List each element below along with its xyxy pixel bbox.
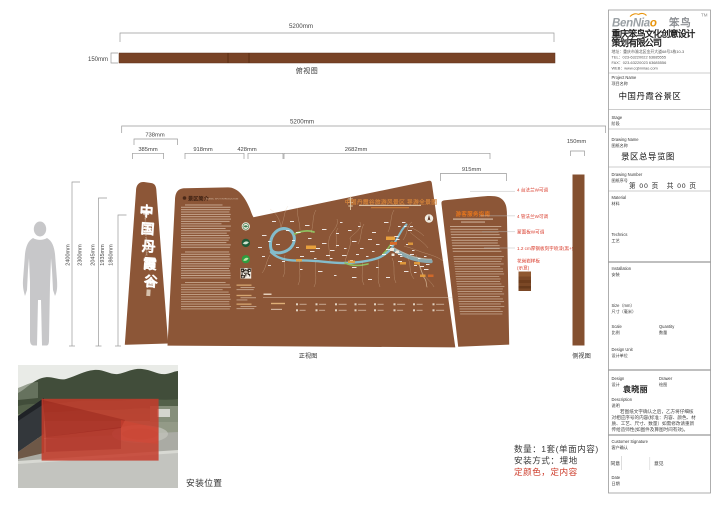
svg-text:第 00 页 共 00 页: 第 00 页 共 00 页 <box>629 181 697 190</box>
svg-text:4 管法兰W可调: 4 管法兰W可调 <box>517 213 549 220</box>
svg-text:2682mm: 2682mm <box>345 147 368 153</box>
svg-text:2300mm: 2300mm <box>78 244 84 266</box>
svg-text:日期: 日期 <box>612 480 620 486</box>
svg-text:数量: 数量 <box>659 329 667 335</box>
svg-text:中国丹霞谷旅游风景区 导游全景图: 中国丹霞谷旅游风景区 导游全景图 <box>345 198 438 206</box>
svg-text:质、工艺、尺寸、数量）如需修改请重新: 质、工艺、尺寸、数量）如需修改请重新 <box>612 420 695 427</box>
svg-text:Stage: Stage <box>612 115 623 120</box>
svg-text:客户确认: 客户确认 <box>612 444 628 450</box>
svg-text:比例: 比例 <box>612 329 620 335</box>
svg-text:Design: Design <box>612 376 625 381</box>
svg-text:2400mm: 2400mm <box>66 244 72 266</box>
svg-text:Customer Signature: Customer Signature <box>612 439 649 444</box>
svg-text:工艺: 工艺 <box>612 238 620 243</box>
svg-text:中国丹霞谷景区: 中国丹霞谷景区 <box>619 91 682 101</box>
svg-text:正视图: 正视图 <box>299 352 318 360</box>
svg-text:谷: 谷 <box>144 274 159 290</box>
svg-text:设计: 设计 <box>612 381 620 387</box>
svg-text:Description: Description <box>612 397 633 402</box>
svg-text:918mm: 918mm <box>193 147 213 153</box>
svg-text:Drawer: Drawer <box>659 376 673 381</box>
svg-text:Material: Material <box>612 195 627 200</box>
svg-text:Drawing Name: Drawing Name <box>612 137 640 142</box>
svg-text:5200mm: 5200mm <box>290 119 314 126</box>
svg-text:对相应序号的内容(标准：内容、颜色、材: 对相应序号的内容(标准：内容、颜色、材 <box>612 414 697 421</box>
svg-text:俯视图: 俯视图 <box>296 66 319 75</box>
svg-text:150mm: 150mm <box>88 57 108 63</box>
svg-text:WEB：www.cqbnniao.com: WEB：www.cqbnniao.com <box>612 66 658 71</box>
svg-text:游客服务指南: 游客服务指南 <box>456 210 491 218</box>
svg-text:安装方式：埋地: 安装方式：埋地 <box>514 455 578 466</box>
svg-text:绘图: 绘图 <box>659 381 667 387</box>
svg-text:图纸序号: 图纸序号 <box>612 177 628 183</box>
svg-text:Date: Date <box>612 475 621 480</box>
svg-text:传给造师性(如图件及算图时间有效)。: 传给造师性(如图件及算图时间有效)。 <box>612 426 689 433</box>
svg-text:Installation: Installation <box>612 266 632 271</box>
svg-text:Scale: Scale <box>612 324 623 329</box>
svg-text:侧视图: 侧视图 <box>572 352 591 360</box>
svg-text:说明: 说明 <box>612 402 620 408</box>
svg-text:1935mm: 1935mm <box>100 244 106 266</box>
svg-text:2045mm: 2045mm <box>91 244 97 266</box>
svg-text:738mm: 738mm <box>145 133 165 139</box>
svg-text:安装位置: 安装位置 <box>186 477 222 488</box>
svg-text:Technics: Technics <box>612 232 628 237</box>
svg-text:笨鸟: 笨鸟 <box>669 16 692 29</box>
svg-text:阶段: 阶段 <box>612 120 620 126</box>
svg-text:尺寸（毫米）: 尺寸（毫米） <box>612 308 637 314</box>
svg-text:150mm: 150mm <box>567 139 587 145</box>
svg-text:Drawing Number: Drawing Number <box>612 172 643 177</box>
svg-text:BenNiao: BenNiao <box>612 18 657 30</box>
svg-text:地址：重庆市渝北区金开大道68号3栋10-3: 地址：重庆市渝北区金开大道68号3栋10-3 <box>612 49 685 54</box>
svg-text:5200mm: 5200mm <box>289 23 313 30</box>
svg-text:Size（mm）: Size（mm） <box>612 303 635 308</box>
svg-text:915mm: 915mm <box>462 167 482 173</box>
svg-text:(示意): (示意) <box>517 265 530 271</box>
svg-text:花岗岩样板: 花岗岩样板 <box>517 258 540 265</box>
svg-text:FAX：023-63220023 63685556: FAX：023-63220023 63685556 <box>612 60 667 65</box>
svg-text:霞: 霞 <box>143 257 158 273</box>
svg-text:Design Unit: Design Unit <box>612 347 634 352</box>
svg-text:Quantity: Quantity <box>659 324 675 329</box>
svg-text:385mm: 385mm <box>138 147 158 153</box>
svg-text:428mm: 428mm <box>237 147 257 153</box>
svg-text:材料: 材料 <box>612 200 620 206</box>
svg-text:TEL：023-63220022 63685555: TEL：023-63220022 63685555 <box>612 55 667 60</box>
svg-text:袁晓丽: 袁晓丽 <box>622 384 648 394</box>
svg-text:设计单位: 设计单位 <box>612 352 628 358</box>
svg-text:图纸名称: 图纸名称 <box>612 142 628 148</box>
svg-text:同意: 同意 <box>611 460 621 467</box>
svg-text:1860mm: 1860mm <box>109 244 115 266</box>
svg-text:策划有限公司: 策划有限公司 <box>611 37 662 48</box>
svg-text:若图纸文字确认之后，乙方将仔细核: 若图纸文字确认之后，乙方将仔细核 <box>620 408 694 415</box>
svg-text:4 台法兰W可调: 4 台法兰W可调 <box>517 187 549 194</box>
svg-text:定颜色，定内容: 定颜色，定内容 <box>514 466 578 477</box>
svg-text:安装: 安装 <box>612 271 620 277</box>
svg-text:Project Name: Project Name <box>612 75 638 80</box>
svg-text:景区总导览图: 景区总导览图 <box>621 152 675 162</box>
svg-text:蒙面板W可调: 蒙面板W可调 <box>517 229 545 236</box>
svg-text:数量：1套(单面内容): 数量：1套(单面内容) <box>514 443 599 454</box>
svg-text:1.2 cm厚钢板刻字喷漆(黑+红): 1.2 cm厚钢板刻字喷漆(黑+红) <box>517 245 578 252</box>
svg-text:意见: 意见 <box>654 460 664 467</box>
svg-text:SCENIC SPOT INTRODUCTION: SCENIC SPOT INTRODUCTION <box>206 199 239 201</box>
svg-text:丹: 丹 <box>142 239 157 255</box>
svg-text:项目名称: 项目名称 <box>612 80 628 86</box>
svg-text:TM: TM <box>701 13 708 18</box>
